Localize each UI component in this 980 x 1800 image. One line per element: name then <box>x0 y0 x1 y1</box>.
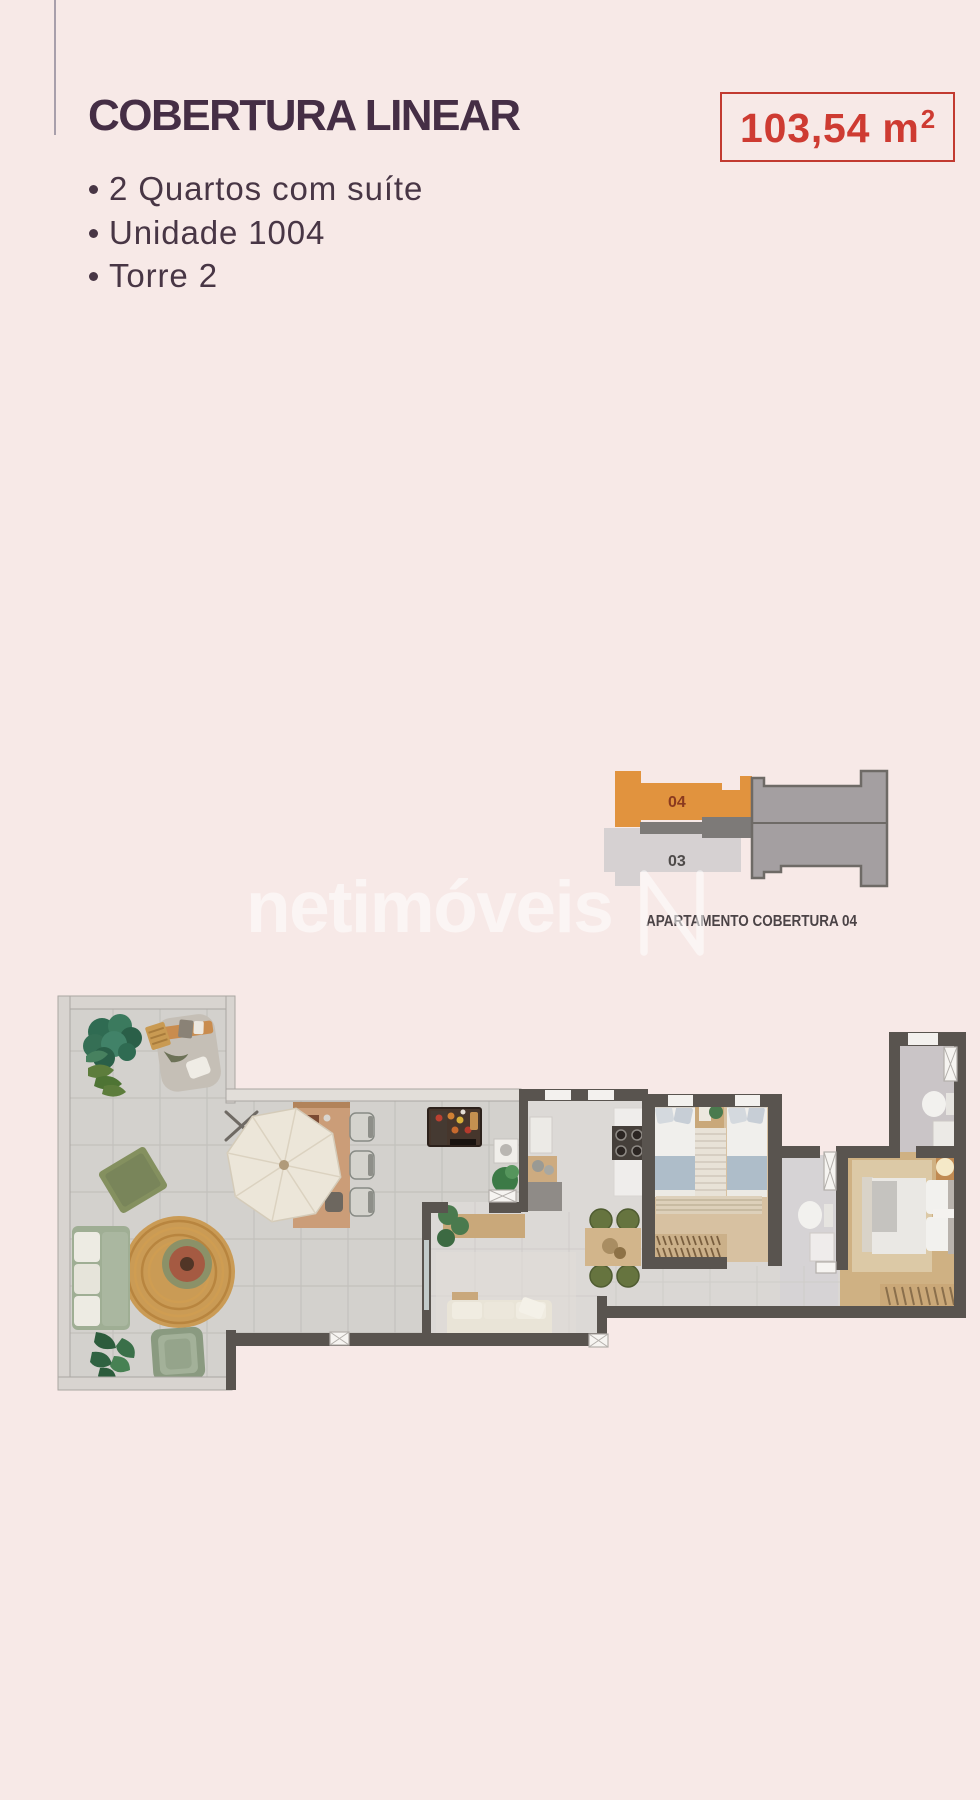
svg-text:04: 04 <box>668 794 686 811</box>
